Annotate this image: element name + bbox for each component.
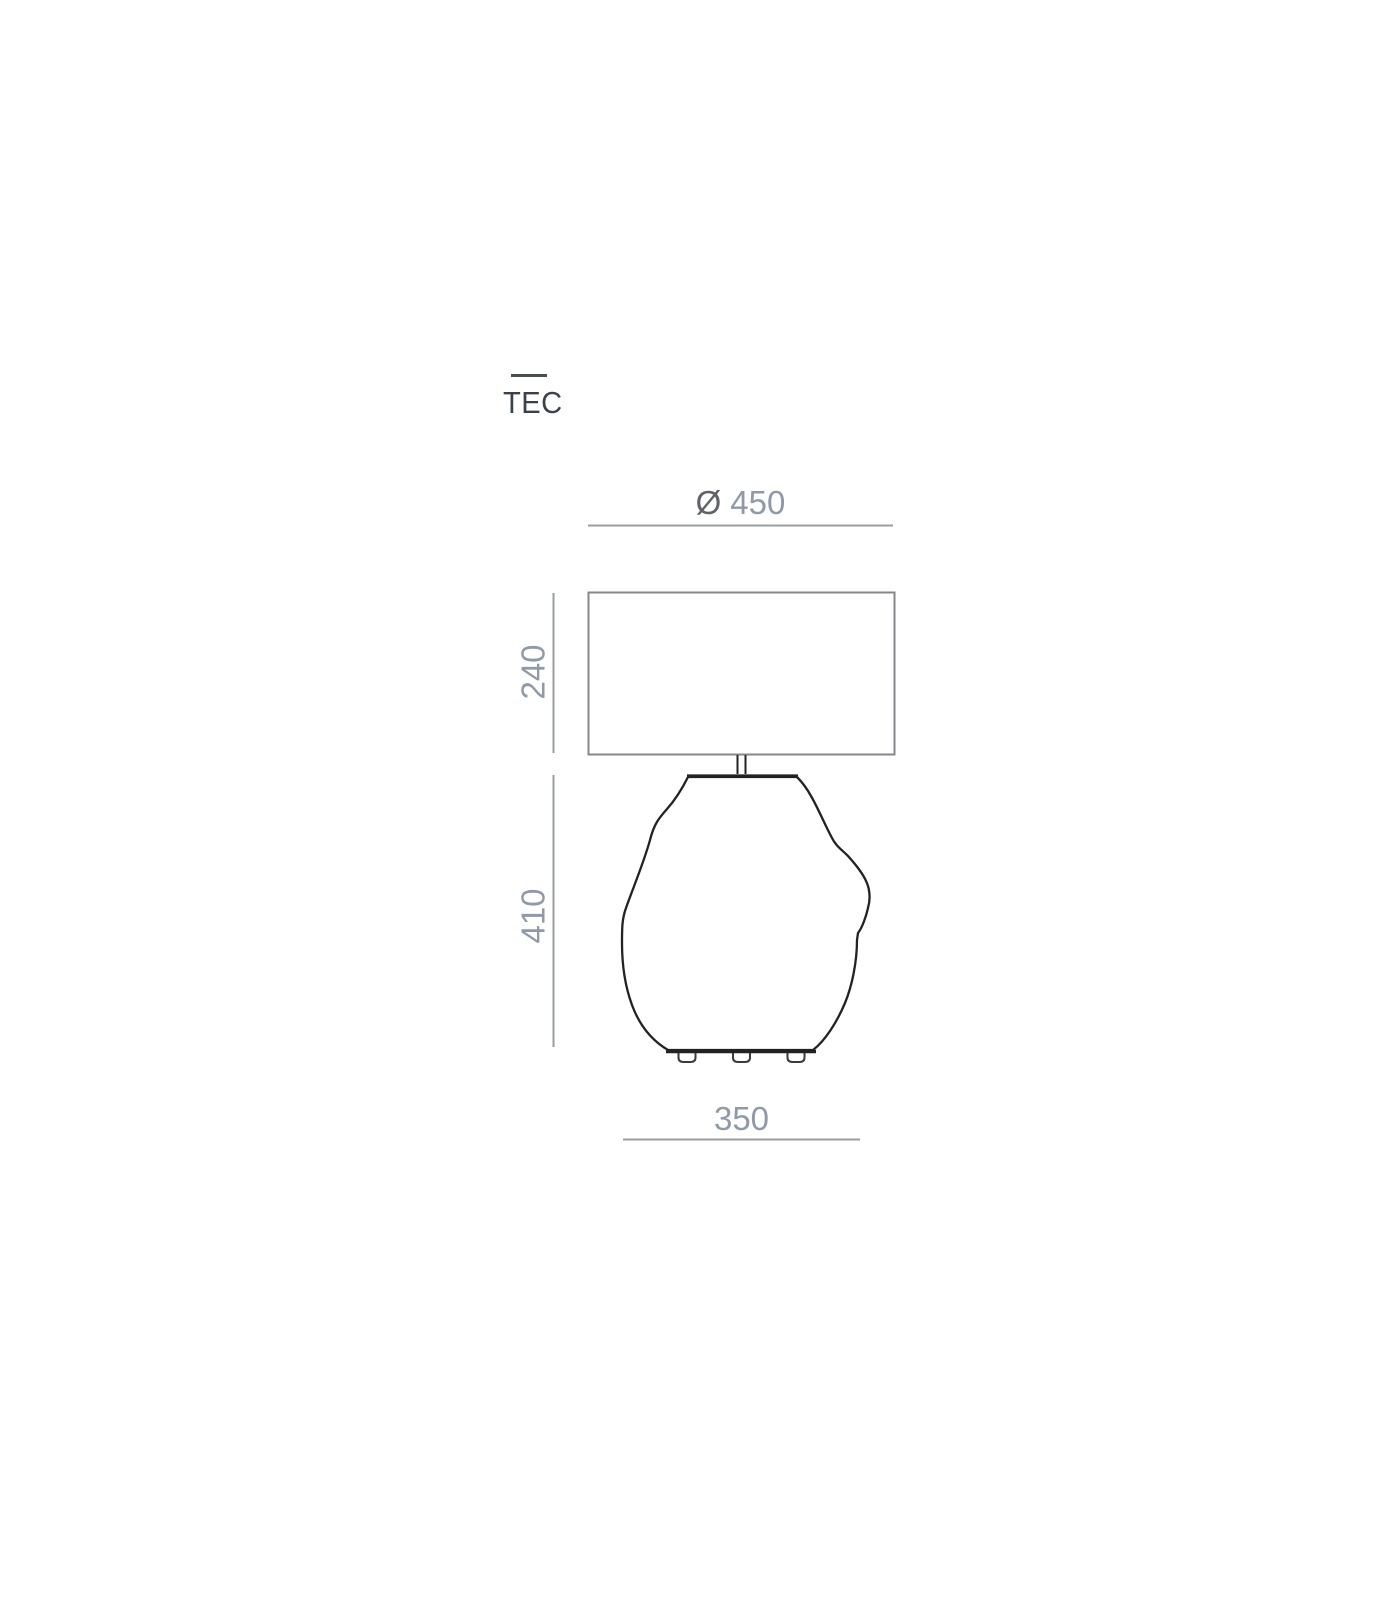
technical-drawing-canvas: TEC Ø450 240 410 350: [0, 0, 1400, 1600]
diameter-symbol: Ø: [696, 484, 722, 521]
diameter-value: 450: [730, 484, 785, 521]
lamp-foot-left: [679, 1053, 696, 1062]
diameter-dimension-label: Ø450: [588, 486, 893, 519]
lamp-technical-drawing: [0, 0, 1400, 1600]
lamp-shade-outline: [589, 593, 895, 755]
lamp-body-outline: [622, 777, 870, 1050]
base-width-dimension-label: 350: [623, 1102, 860, 1135]
lamp-foot-center: [733, 1053, 750, 1062]
shade-height-dimension-label: 240: [517, 644, 550, 699]
lamp-foot-right: [788, 1053, 805, 1062]
body-height-dimension-label: 410: [517, 888, 550, 943]
